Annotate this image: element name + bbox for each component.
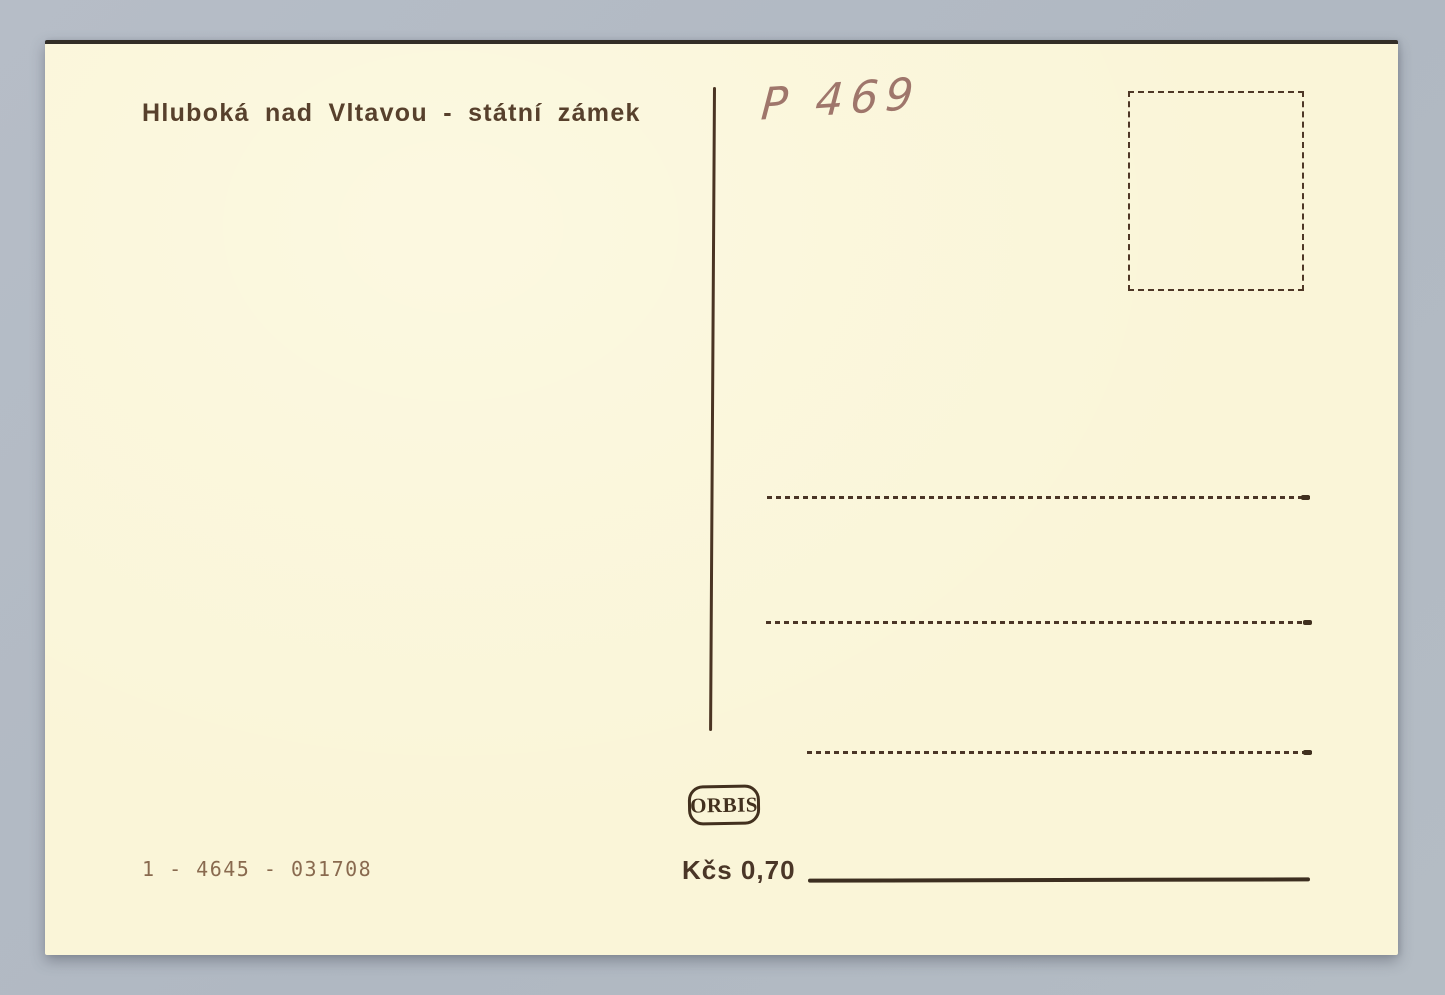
serial-number: 1 - 4645 - 031708 [142, 857, 372, 881]
postcard-back: Hluboká nad Vltavou - státní zámek P 469… [45, 40, 1398, 955]
handwritten-code: P 469 [759, 68, 922, 131]
scanned-postcard-scene: Hluboká nad Vltavou - státní zámek P 469… [0, 0, 1445, 995]
signature-line [808, 877, 1310, 882]
address-line-2 [766, 621, 1312, 624]
address-line-1 [767, 496, 1310, 499]
address-line-3 [807, 751, 1312, 754]
orbis-publisher-logo: ORBIS [688, 784, 761, 825]
price-label: Kčs 0,70 [682, 855, 796, 886]
postcard-title: Hluboká nad Vltavou - státní zámek [142, 99, 641, 128]
orbis-logo-text: ORBIS [690, 792, 758, 818]
divider-line [709, 87, 716, 731]
stamp-box [1128, 91, 1304, 291]
